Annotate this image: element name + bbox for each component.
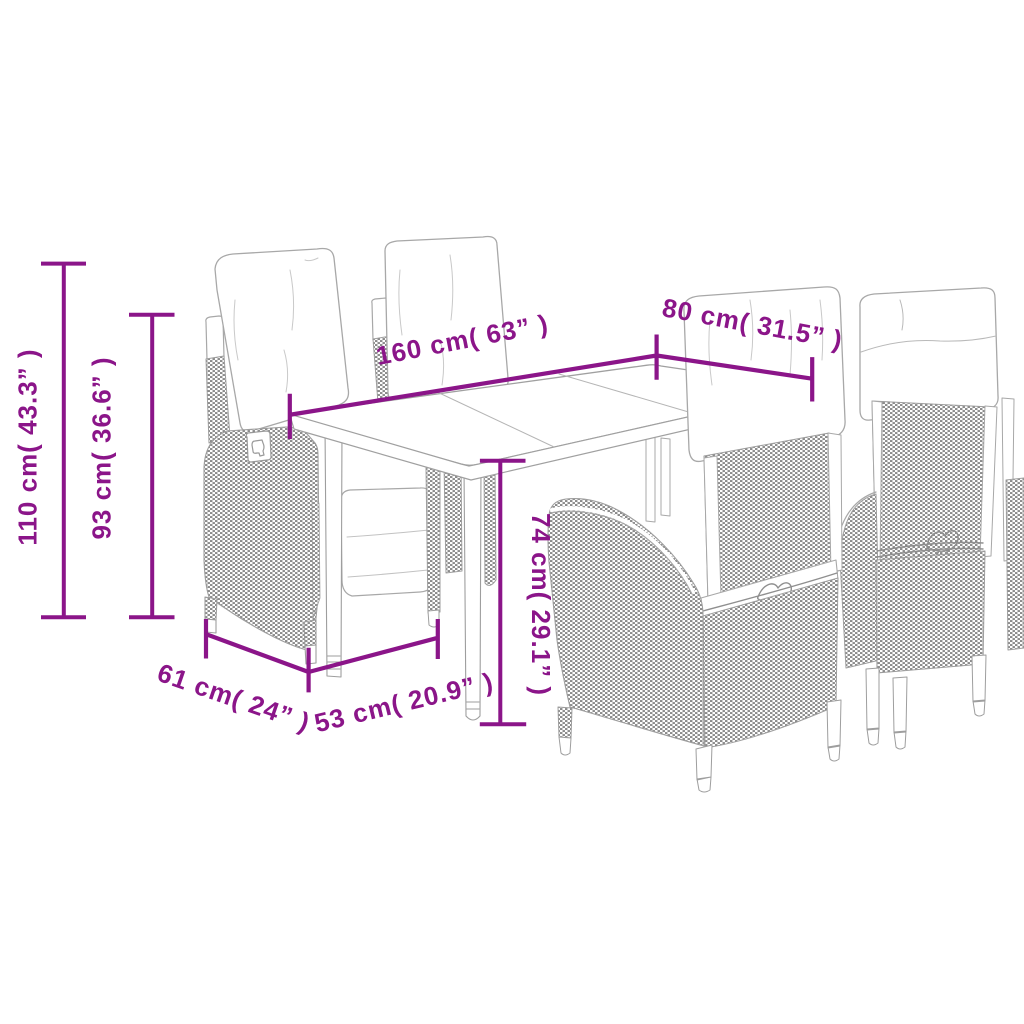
svg-text:110 cm( 43.3” ): 110 cm( 43.3” ): [13, 348, 43, 545]
svg-text:93 cm( 36.6” ): 93 cm( 36.6” ): [87, 356, 117, 539]
svg-text:74 cm( 29.1” ): 74 cm( 29.1” ): [526, 513, 556, 696]
